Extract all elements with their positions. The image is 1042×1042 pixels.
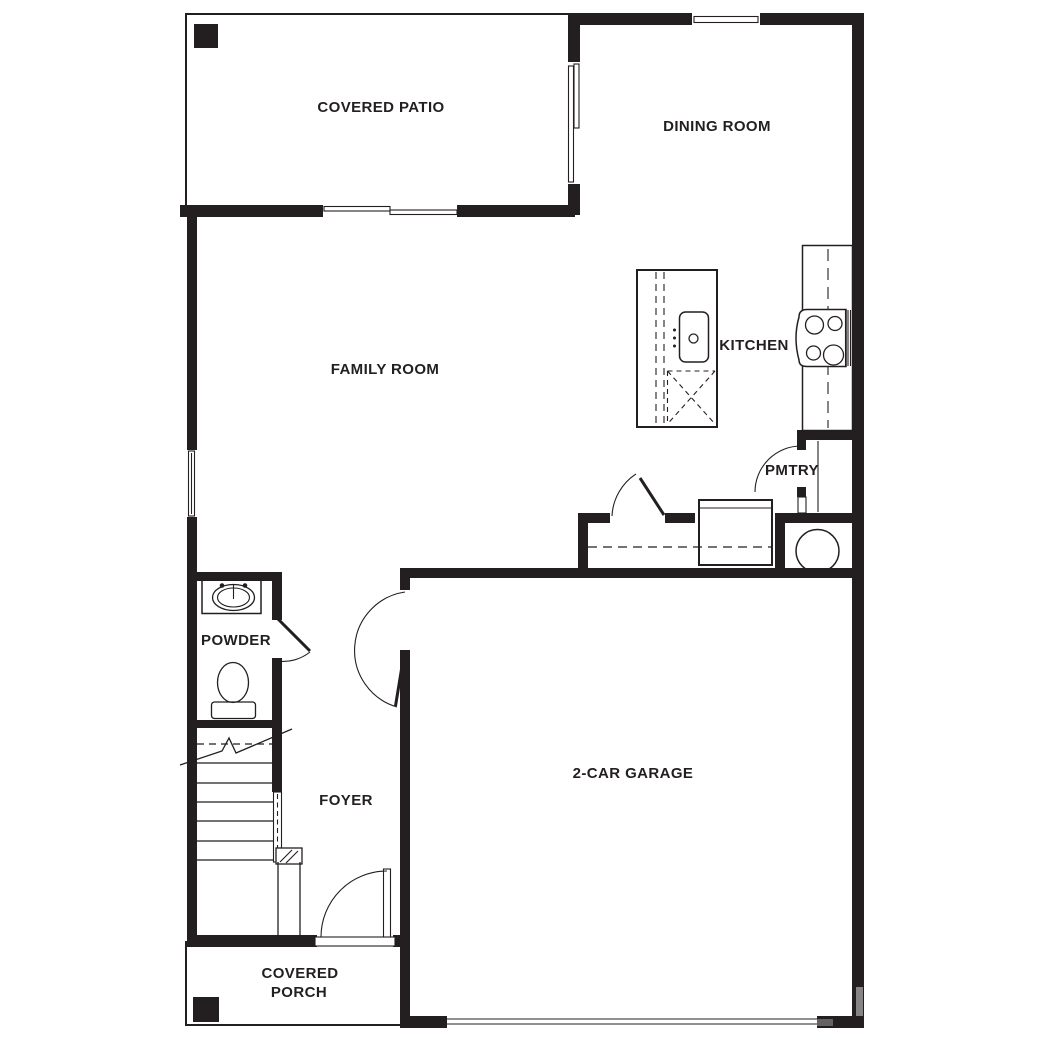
wall-segment xyxy=(180,205,323,217)
water-heater xyxy=(796,530,839,573)
patio-side-sliding-door-panel xyxy=(574,64,579,128)
wall-segment xyxy=(187,205,197,450)
wall-segment xyxy=(187,720,282,728)
label-foyer: FOYER xyxy=(319,792,373,809)
wall-segment xyxy=(578,513,588,578)
toilet-bowl xyxy=(218,663,249,703)
garage-door xyxy=(447,1019,817,1024)
label-pantry: PMTRY xyxy=(765,462,819,479)
label-covered-porch-line2: PORCH xyxy=(271,984,327,1001)
faucet-dot xyxy=(673,345,676,348)
wall-segment xyxy=(457,205,575,217)
pantry-door-jamb xyxy=(797,440,806,450)
pantry-door-jamb xyxy=(797,487,806,497)
toilet-tank xyxy=(212,702,256,719)
closet-door-leaf xyxy=(640,478,664,515)
island-sink xyxy=(680,312,709,362)
laundry-appliance xyxy=(699,500,772,565)
floor-plan-drawing: COVERED PATIO DINING ROOM FAMILY ROOM KI… xyxy=(0,0,1042,1042)
wall-segment xyxy=(852,13,864,1028)
watermark-fragment xyxy=(856,987,863,1016)
stairs xyxy=(180,729,302,935)
watermark-fragment xyxy=(813,1019,833,1026)
closet-door-swing xyxy=(612,474,636,516)
front-door-threshold xyxy=(315,937,395,946)
label-powder: POWDER xyxy=(201,632,271,649)
stair-stringer xyxy=(278,862,300,935)
faucet-dot xyxy=(673,329,676,332)
label-covered-patio: COVERED PATIO xyxy=(317,99,444,116)
powder-fixtures xyxy=(202,580,261,719)
faucet-handle xyxy=(220,583,225,588)
wall-segment xyxy=(568,13,580,62)
porch-post xyxy=(193,997,219,1022)
wall-segment xyxy=(760,13,864,25)
wall-segment xyxy=(187,517,197,947)
floor-plan-canvas: COVERED PATIO DINING ROOM FAMILY ROOM KI… xyxy=(0,0,1042,1042)
wall-segment xyxy=(797,430,857,440)
wall-segment xyxy=(400,650,410,1028)
patio-sliding-door-panel xyxy=(390,210,457,215)
wall-segment xyxy=(568,13,692,25)
front-door-leaf xyxy=(384,869,391,937)
hall-fixtures xyxy=(588,441,839,573)
wall-segment xyxy=(187,935,317,947)
patio-side-sliding-door-panel xyxy=(569,66,574,182)
stair-treads xyxy=(197,763,276,860)
wall-segment xyxy=(775,513,852,523)
powder-door-leaf xyxy=(278,619,310,651)
pantry-wall-thin xyxy=(798,497,806,513)
covered-porch-outline xyxy=(186,941,404,1025)
wall-segment xyxy=(400,1016,447,1028)
front-door-swing xyxy=(321,871,387,937)
label-dining-room: DINING ROOM xyxy=(663,118,771,135)
label-family-room: FAMILY ROOM xyxy=(331,361,440,378)
wall-segment xyxy=(775,513,785,578)
wall-segment xyxy=(272,658,282,728)
label-garage: 2-CAR GARAGE xyxy=(573,765,694,782)
wall-segment xyxy=(272,572,282,620)
wall-segment xyxy=(402,568,864,578)
windows xyxy=(189,17,759,517)
faucet-handle xyxy=(243,583,248,588)
label-covered-porch-line1: COVERED xyxy=(262,965,339,982)
faucet-dot xyxy=(673,337,676,340)
label-kitchen: KITCHEN xyxy=(719,337,788,354)
wall-segment xyxy=(665,513,695,523)
patio-post xyxy=(194,24,218,48)
dining-window xyxy=(694,17,758,23)
patio-sliding-door-panel xyxy=(324,207,390,212)
